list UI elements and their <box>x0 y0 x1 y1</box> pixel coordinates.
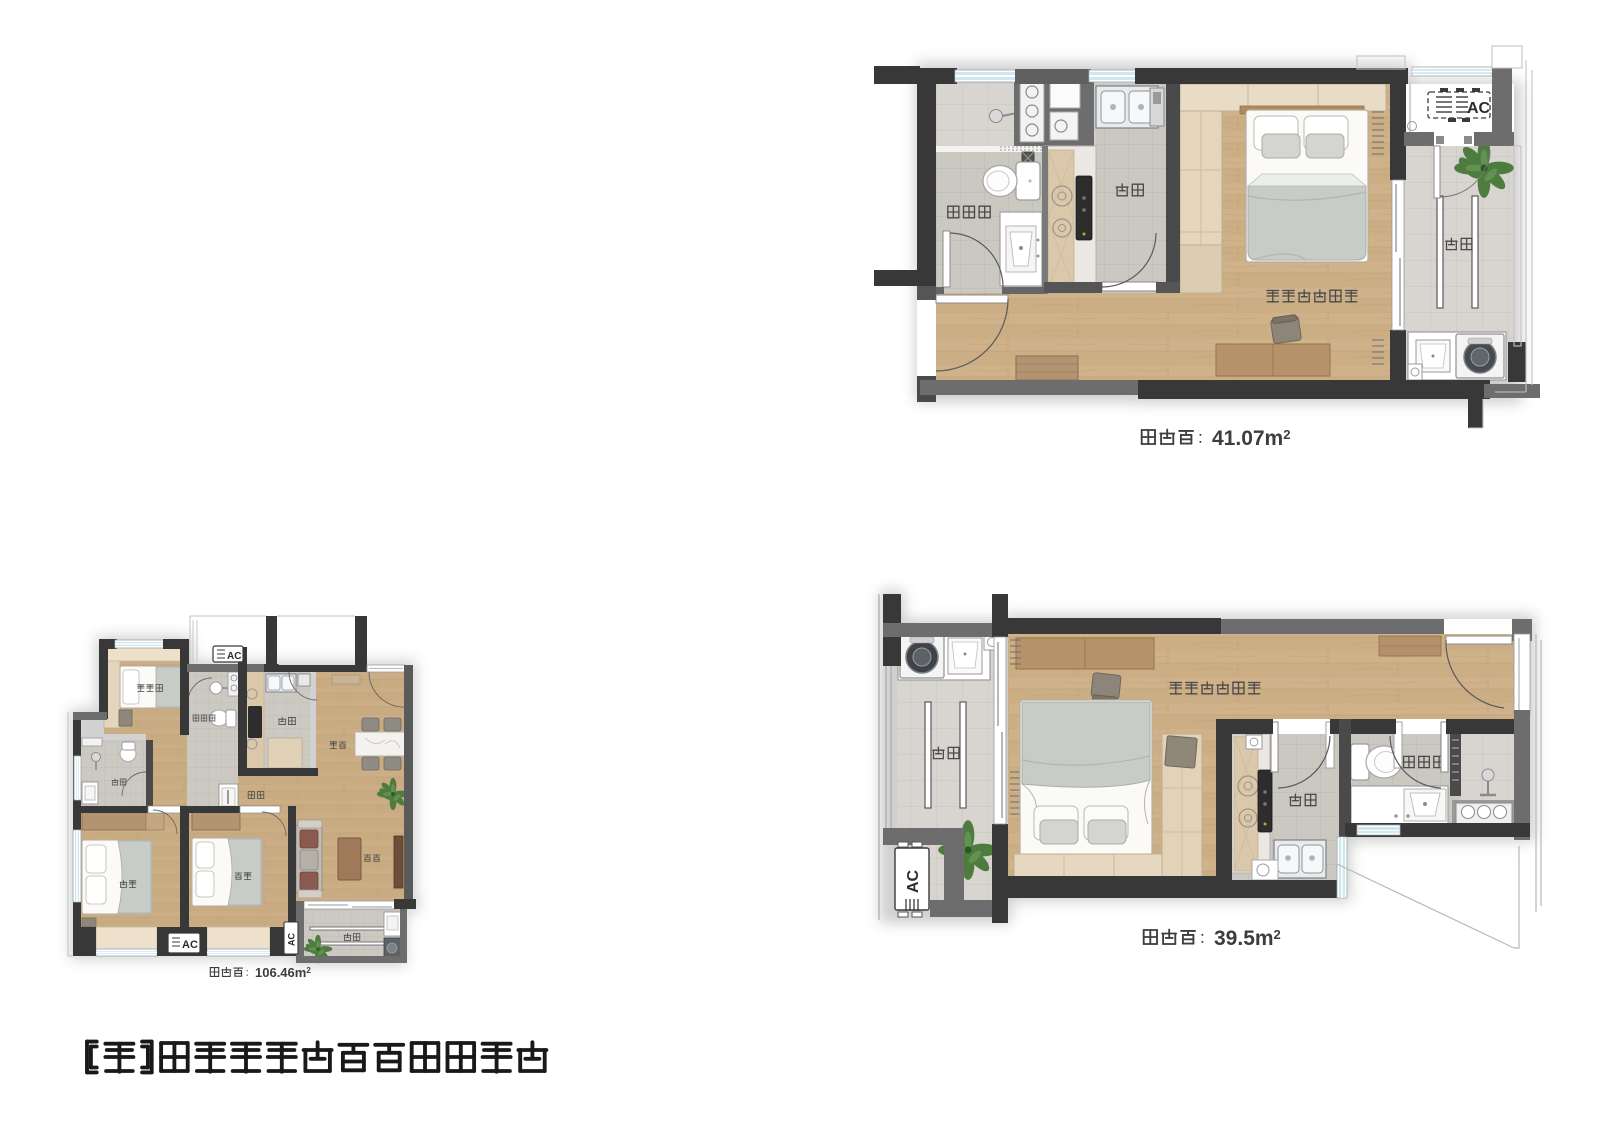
svg-text:39.5m2: 39.5m2 <box>1214 927 1281 950</box>
svg-text:AC: AC <box>227 651 241 662</box>
svg-text:106.46m2: 106.46m2 <box>255 965 311 980</box>
svg-text:AC: AC <box>1467 100 1491 117</box>
svg-text:41.07m2: 41.07m2 <box>1212 427 1290 450</box>
svg-text:AC: AC <box>287 933 297 946</box>
svg-text:AC: AC <box>905 869 922 893</box>
svg-text:AC: AC <box>182 939 198 951</box>
